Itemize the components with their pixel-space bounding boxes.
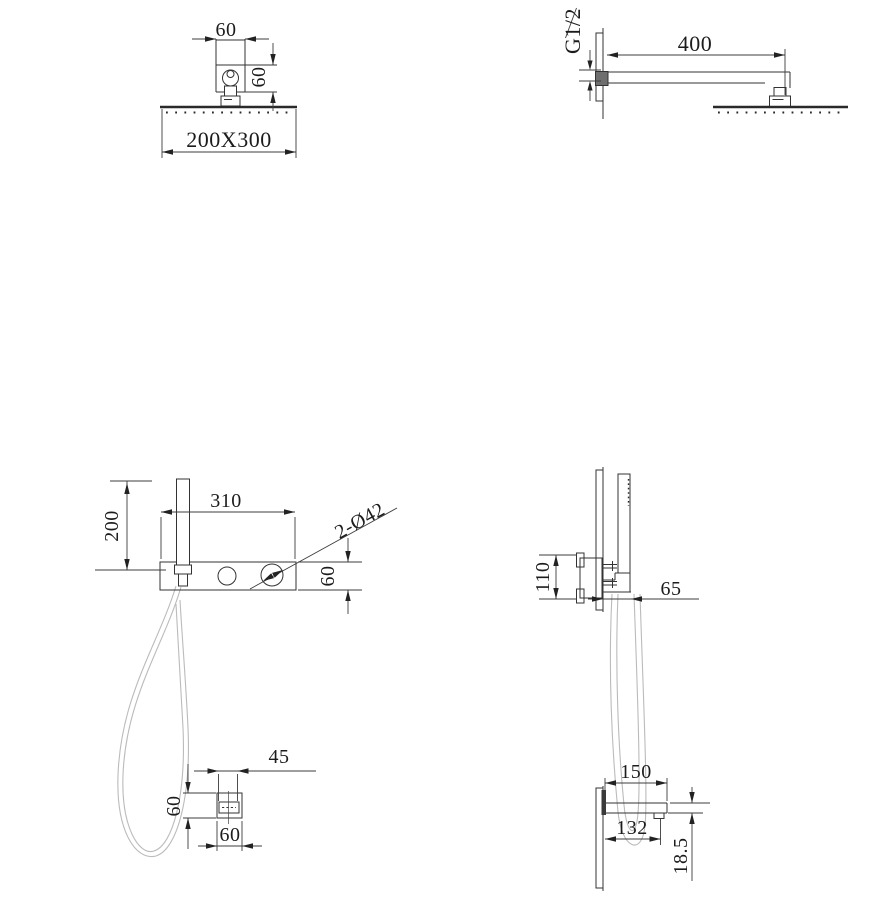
bracket-body	[217, 793, 242, 818]
spout-nozzle	[654, 813, 664, 819]
dim-arm-length-label: 400	[678, 33, 713, 55]
dim-bracket-side-height-label: 60	[164, 796, 184, 817]
dim-mixer-handle-height-label: 200	[102, 510, 122, 542]
dim-overhead-plate-size-label: 200X300	[186, 129, 271, 151]
dim-arm-thread-label: G1/2	[562, 8, 584, 54]
dim-overhead-side-height-label: 60	[249, 67, 269, 88]
wall-connector	[596, 72, 609, 86]
dim-mixer-plate-width-label: 310	[210, 491, 242, 511]
side-view-hose-loop	[610, 594, 646, 845]
dim-spout-height-label: 18.5	[671, 838, 691, 875]
handle-hole-left	[218, 567, 236, 585]
drawing-linework	[0, 0, 874, 903]
view-tub-spout-side	[596, 778, 710, 891]
dim-bracket-bottom-width-label: 60	[220, 825, 241, 845]
dim-plate-depth-label: 65	[661, 579, 682, 599]
dim-overhead-top-width-label: 60	[216, 20, 237, 40]
wall-hatch	[596, 33, 603, 101]
dim-spout-nozzle-offset-label: 132	[616, 818, 648, 838]
hand-shower-wand	[177, 479, 190, 565]
technical-drawing-canvas: 60 60 200X300 G1/2 400 200 310 2-Ø42 60 …	[0, 0, 874, 903]
view-mixer-plate-front	[95, 479, 397, 614]
arm-ball-joint	[770, 96, 791, 107]
dim-valve-height-label: 110	[533, 562, 553, 593]
dim-mixer-plate-height-label: 60	[318, 566, 338, 587]
dim-spout-length-label: 150	[620, 762, 652, 782]
view-shower-arm-side	[566, 8, 849, 119]
dim-bracket-clip-width-label: 45	[269, 747, 290, 767]
view-wall-bracket-front	[183, 764, 316, 851]
valve-body	[580, 558, 602, 598]
